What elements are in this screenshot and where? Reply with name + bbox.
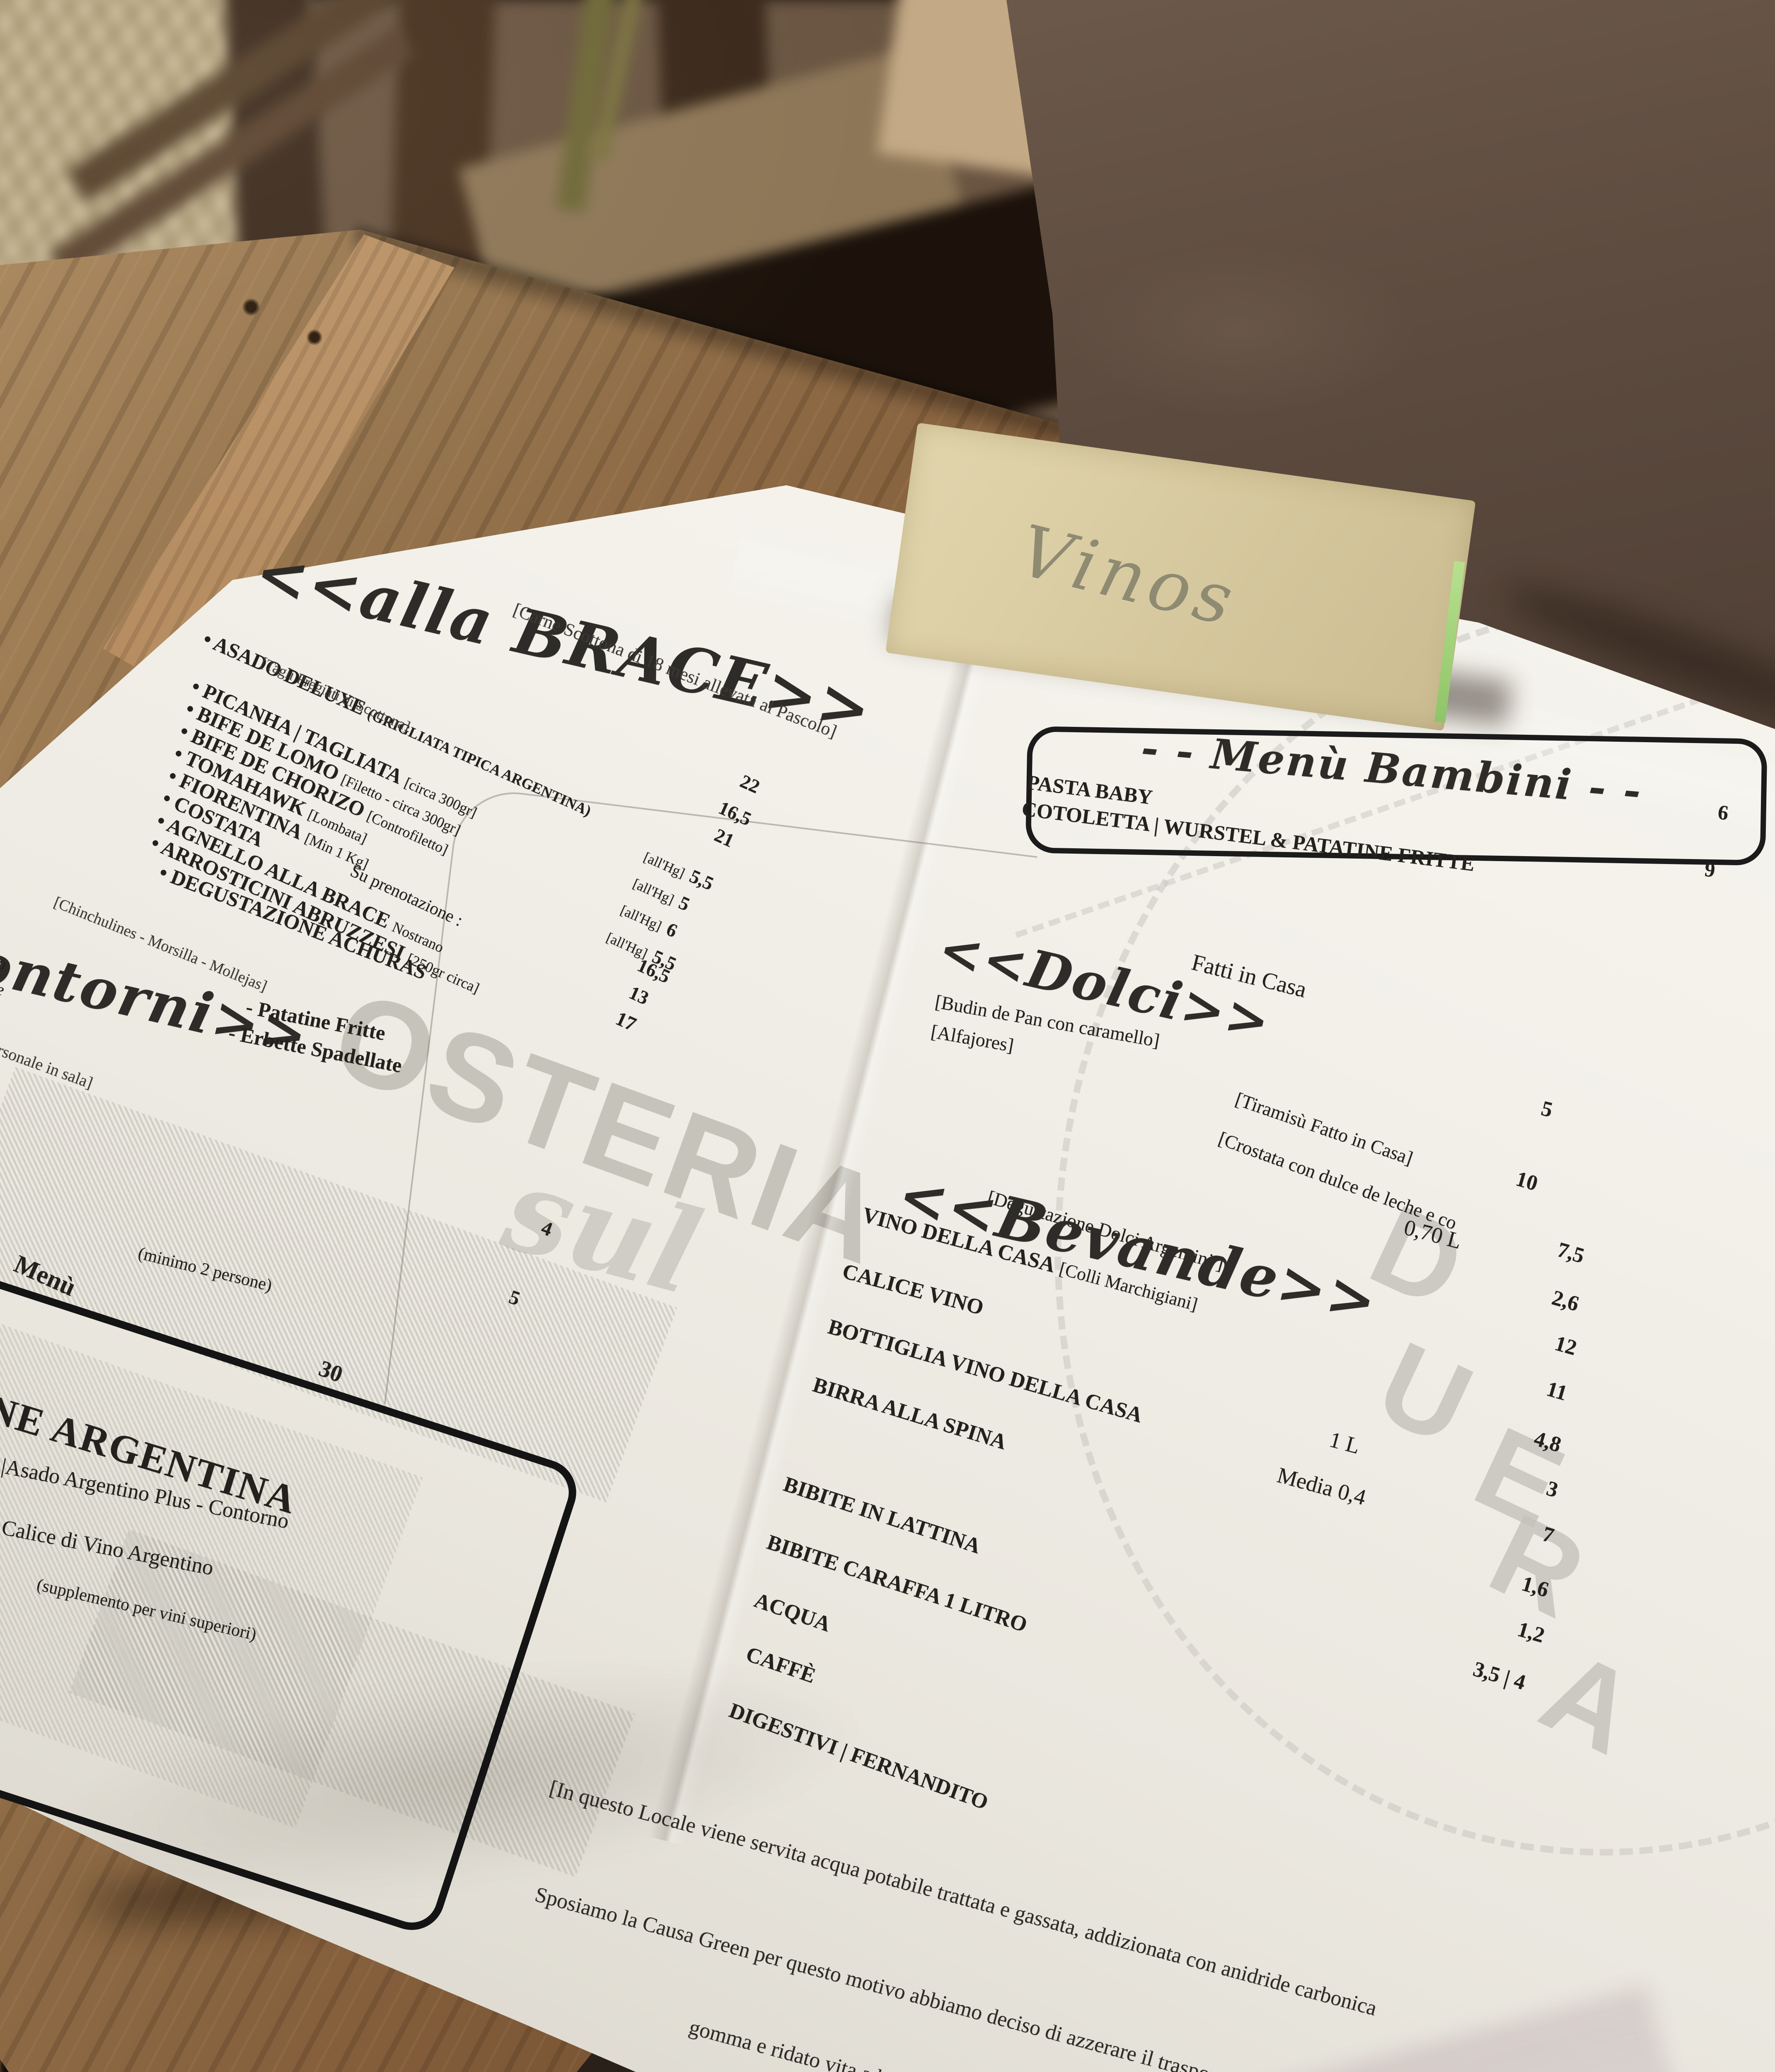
table-screw [242, 298, 260, 316]
photo-restaurant-menu: { "note_card": { "text": "Vinos" }, "lef… [0, 0, 1775, 2072]
table-screw [307, 329, 322, 345]
note-card-handwriting: Vinos [1011, 510, 1245, 643]
